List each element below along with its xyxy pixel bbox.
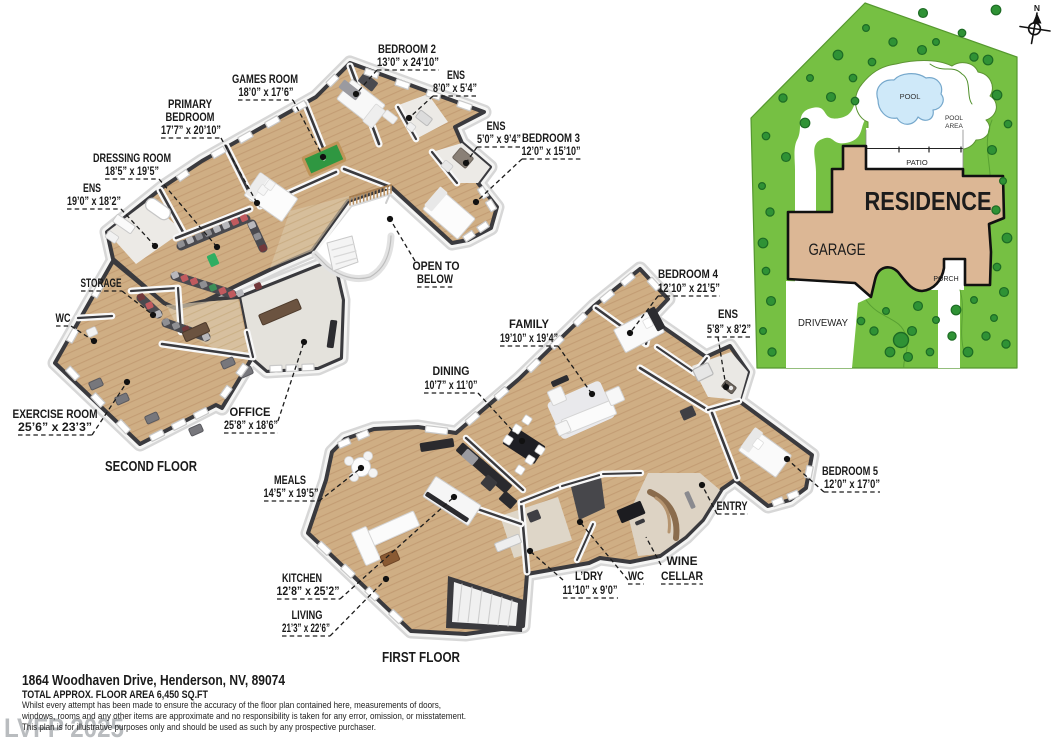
- svg-text:BEDROOM 4: BEDROOM 4: [658, 267, 718, 281]
- svg-text:12’0” x 15’10”: 12’0” x 15’10”: [522, 144, 581, 158]
- svg-text:19’10” x 19’4”: 19’10” x 19’4”: [500, 331, 558, 345]
- svg-text:WC: WC: [628, 569, 644, 583]
- svg-text:BEDROOM 5: BEDROOM 5: [822, 464, 878, 478]
- svg-text:L’DRY: L’DRY: [575, 569, 603, 583]
- svg-text:10’7” x 11’0”: 10’7” x 11’0”: [425, 378, 478, 392]
- svg-text:13’0” x 24’10”: 13’0” x 24’10”: [377, 55, 439, 69]
- svg-text:8’0” x 5’4”: 8’0” x 5’4”: [433, 81, 477, 95]
- svg-text:STORAGE: STORAGE: [81, 276, 122, 290]
- svg-text:19’0” x 18’2”: 19’0” x 18’2”: [67, 194, 121, 208]
- svg-text:25’6” x 23’3”: 25’6” x 23’3”: [18, 420, 92, 434]
- svg-text:KITCHEN: KITCHEN: [282, 571, 322, 585]
- svg-text:WC: WC: [56, 311, 71, 325]
- svg-text:POOL: POOL: [945, 115, 963, 122]
- svg-text:EXERCISE ROOM: EXERCISE ROOM: [13, 407, 98, 421]
- svg-text:ENS: ENS: [487, 119, 506, 133]
- svg-text:14’5” x 19’5”: 14’5” x 19’5”: [264, 486, 319, 500]
- svg-text:17’7” x 20’10”: 17’7” x 20’10”: [161, 123, 221, 137]
- svg-text:PRIMARY: PRIMARY: [168, 97, 212, 111]
- svg-text:12’8” x 25’2”: 12’8” x 25’2”: [277, 584, 340, 598]
- svg-text:FAMILY: FAMILY: [509, 317, 549, 331]
- svg-text:11’10” x 9’0”: 11’10” x 9’0”: [563, 583, 618, 597]
- svg-text:GAMES ROOM: GAMES ROOM: [232, 72, 298, 86]
- svg-text:DRESSING ROOM: DRESSING ROOM: [93, 151, 171, 165]
- svg-text:BELOW: BELOW: [417, 272, 453, 286]
- svg-text:AREA: AREA: [945, 123, 963, 130]
- svg-text:18’0” x 17’6”: 18’0” x 17’6”: [239, 85, 294, 99]
- svg-text:ENS: ENS: [447, 68, 465, 82]
- svg-text:12’10” x 21’5”: 12’10” x 21’5”: [658, 281, 720, 295]
- svg-text:Whilst every attempt has been: Whilst every attempt has been made to en…: [22, 700, 441, 710]
- svg-text:FIRST FLOOR: FIRST FLOOR: [382, 650, 460, 666]
- svg-text:BEDROOM: BEDROOM: [166, 110, 215, 124]
- svg-text:OPEN TO: OPEN TO: [413, 259, 460, 273]
- svg-text:BEDROOM 2: BEDROOM 2: [378, 42, 436, 56]
- svg-text:ENS: ENS: [83, 181, 101, 195]
- svg-text:1864 Woodhaven Drive, Henderso: 1864 Woodhaven Drive, Henderson, NV, 890…: [22, 672, 286, 689]
- svg-text:25’8” x 18’6”: 25’8” x 18’6”: [224, 418, 278, 432]
- svg-text:21’3” x 22’6”: 21’3” x 22’6”: [282, 621, 330, 635]
- svg-text:DINING: DINING: [433, 364, 470, 378]
- svg-text:PORCH: PORCH: [933, 276, 958, 283]
- svg-text:This plan is for illustrative: This plan is for illustrative purposes o…: [22, 722, 376, 732]
- svg-text:BEDROOM 3: BEDROOM 3: [522, 131, 580, 145]
- svg-text:WINE: WINE: [667, 554, 698, 568]
- svg-text:ENTRY: ENTRY: [717, 499, 748, 513]
- svg-text:ENS: ENS: [718, 307, 738, 321]
- svg-text:OFFICE: OFFICE: [230, 405, 271, 419]
- svg-text:GARAGE: GARAGE: [809, 240, 866, 259]
- svg-text:12’0” x 17’0”: 12’0” x 17’0”: [824, 477, 880, 491]
- svg-text:DRIVEWAY: DRIVEWAY: [798, 317, 848, 329]
- svg-text:CELLAR: CELLAR: [661, 569, 703, 583]
- svg-text:LIVING: LIVING: [292, 608, 323, 622]
- svg-text:5’0” x 9’4”: 5’0” x 9’4”: [477, 132, 521, 146]
- svg-text:windows, rooms and any other i: windows, rooms and any other items are a…: [21, 711, 466, 721]
- svg-text:SECOND FLOOR: SECOND FLOOR: [105, 459, 197, 475]
- svg-text:N: N: [1034, 3, 1040, 13]
- svg-text:MEALS: MEALS: [274, 473, 306, 487]
- svg-text:RESIDENCE: RESIDENCE: [865, 186, 992, 216]
- svg-text:POOL: POOL: [900, 92, 921, 101]
- svg-text:18’5” x 19’5”: 18’5” x 19’5”: [105, 164, 159, 178]
- svg-text:5’8” x 8’2”: 5’8” x 8’2”: [707, 322, 751, 336]
- svg-text:PATIO: PATIO: [906, 158, 928, 167]
